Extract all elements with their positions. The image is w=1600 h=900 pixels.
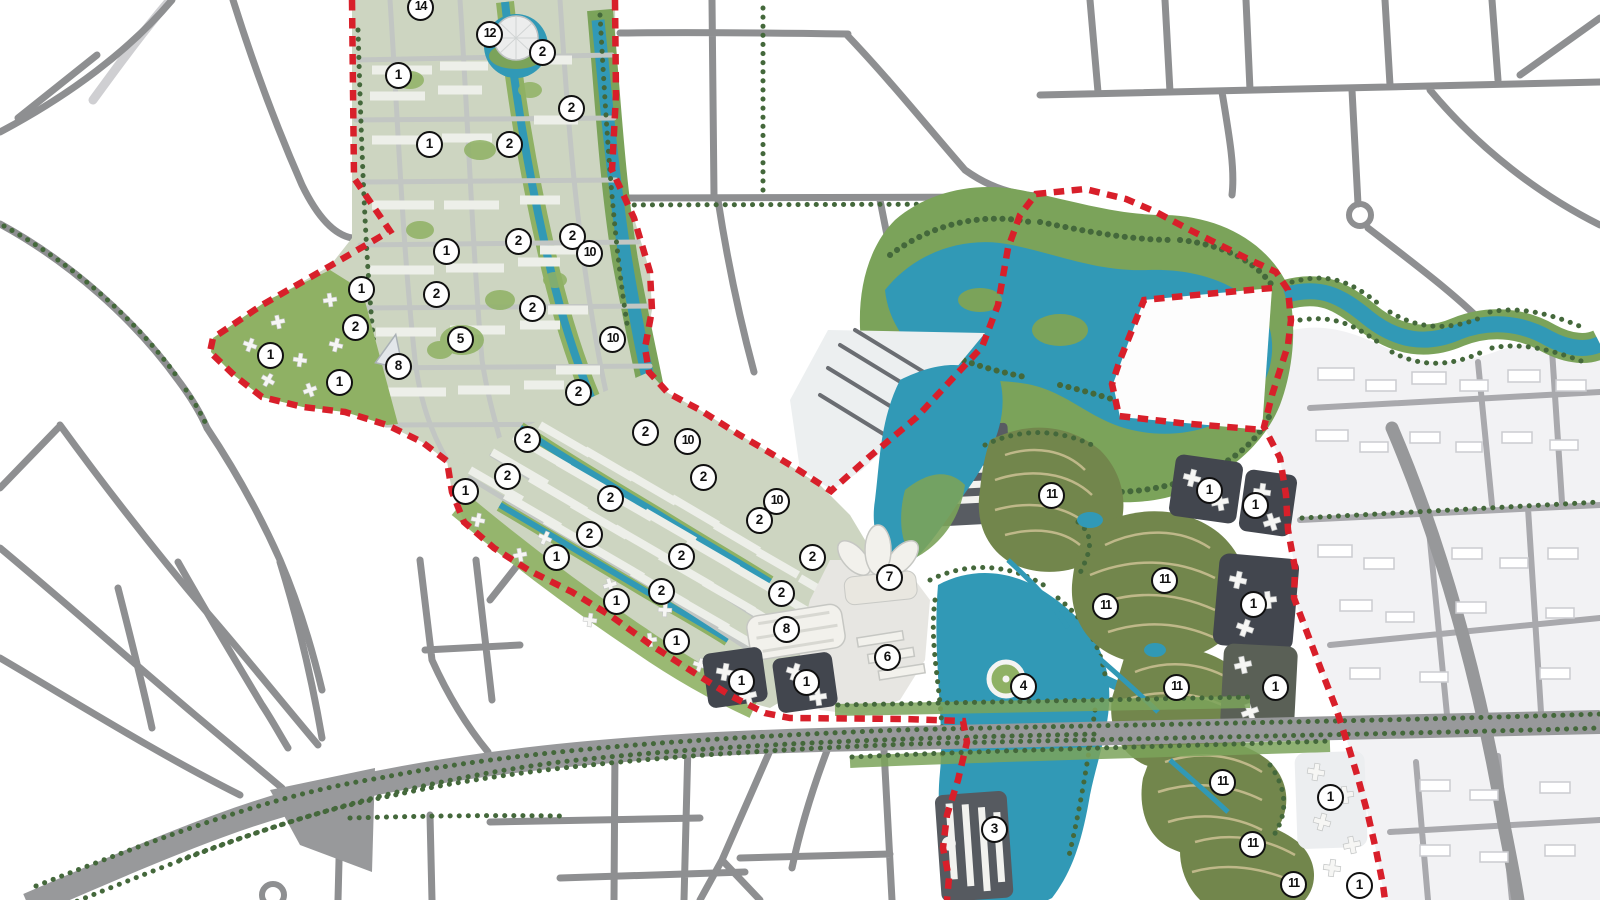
geodesic-dome-icon (484, 14, 548, 78)
ferris-plaza-icon (989, 662, 1023, 696)
masterplan-map: 1412212122210112210251812221021221022122… (0, 0, 1600, 900)
map-canvas (0, 0, 1600, 900)
